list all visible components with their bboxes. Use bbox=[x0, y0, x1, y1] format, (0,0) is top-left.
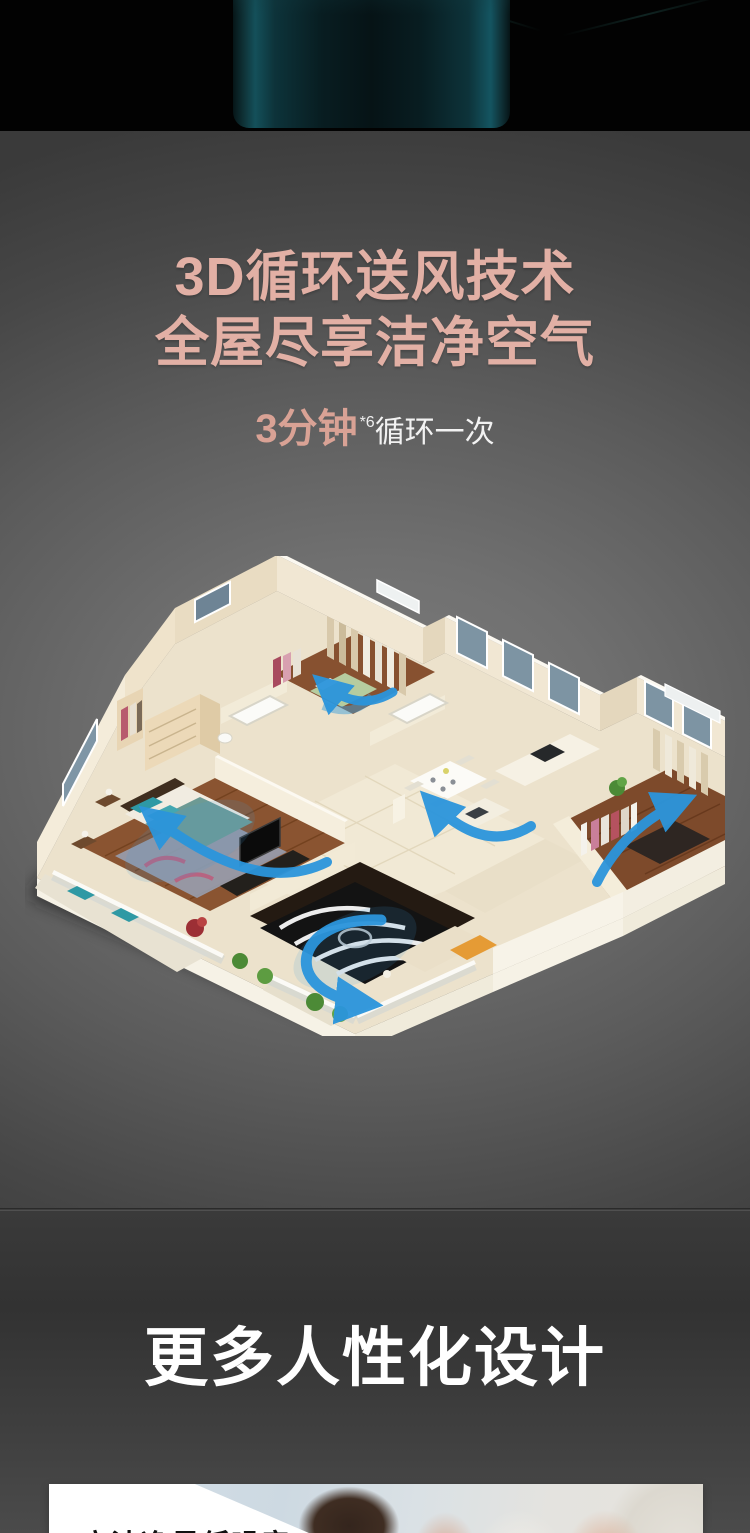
product-photo-section bbox=[0, 0, 750, 131]
product-image-bottom bbox=[233, 0, 510, 128]
product-detail-page: 3D循环送风技术 全屋尽享洁净空气 3分钟*6循环一次 bbox=[0, 0, 750, 1533]
noise-card-title: 高洁净量低噪音 bbox=[81, 1522, 291, 1533]
design-feature-section: 更多人性化设计 高洁净量低噪音 bbox=[0, 1211, 750, 1533]
design-section-title: 更多人性化设计 bbox=[0, 1307, 750, 1399]
floor-plan-illustration bbox=[25, 556, 725, 1036]
light-streak bbox=[562, 0, 727, 37]
stat-suffix: 循环一次 bbox=[375, 416, 495, 449]
airflow-feature-section: 3D循环送风技术 全屋尽享洁净空气 3分钟*6循环一次 bbox=[0, 131, 750, 1208]
stat-value: 3分钟 bbox=[255, 407, 357, 451]
noise-feature-card: 高洁净量低噪音 bbox=[49, 1484, 703, 1533]
stat-footnote: *6 bbox=[360, 414, 375, 431]
section-title-line1: 3D循环送风技术 bbox=[0, 244, 750, 310]
airflow-stat-line: 3分钟*6循环一次 bbox=[0, 396, 750, 454]
section-title-line2: 全屋尽享洁净空气 bbox=[0, 310, 750, 376]
section-title: 3D循环送风技术 全屋尽享洁净空气 bbox=[0, 244, 750, 376]
